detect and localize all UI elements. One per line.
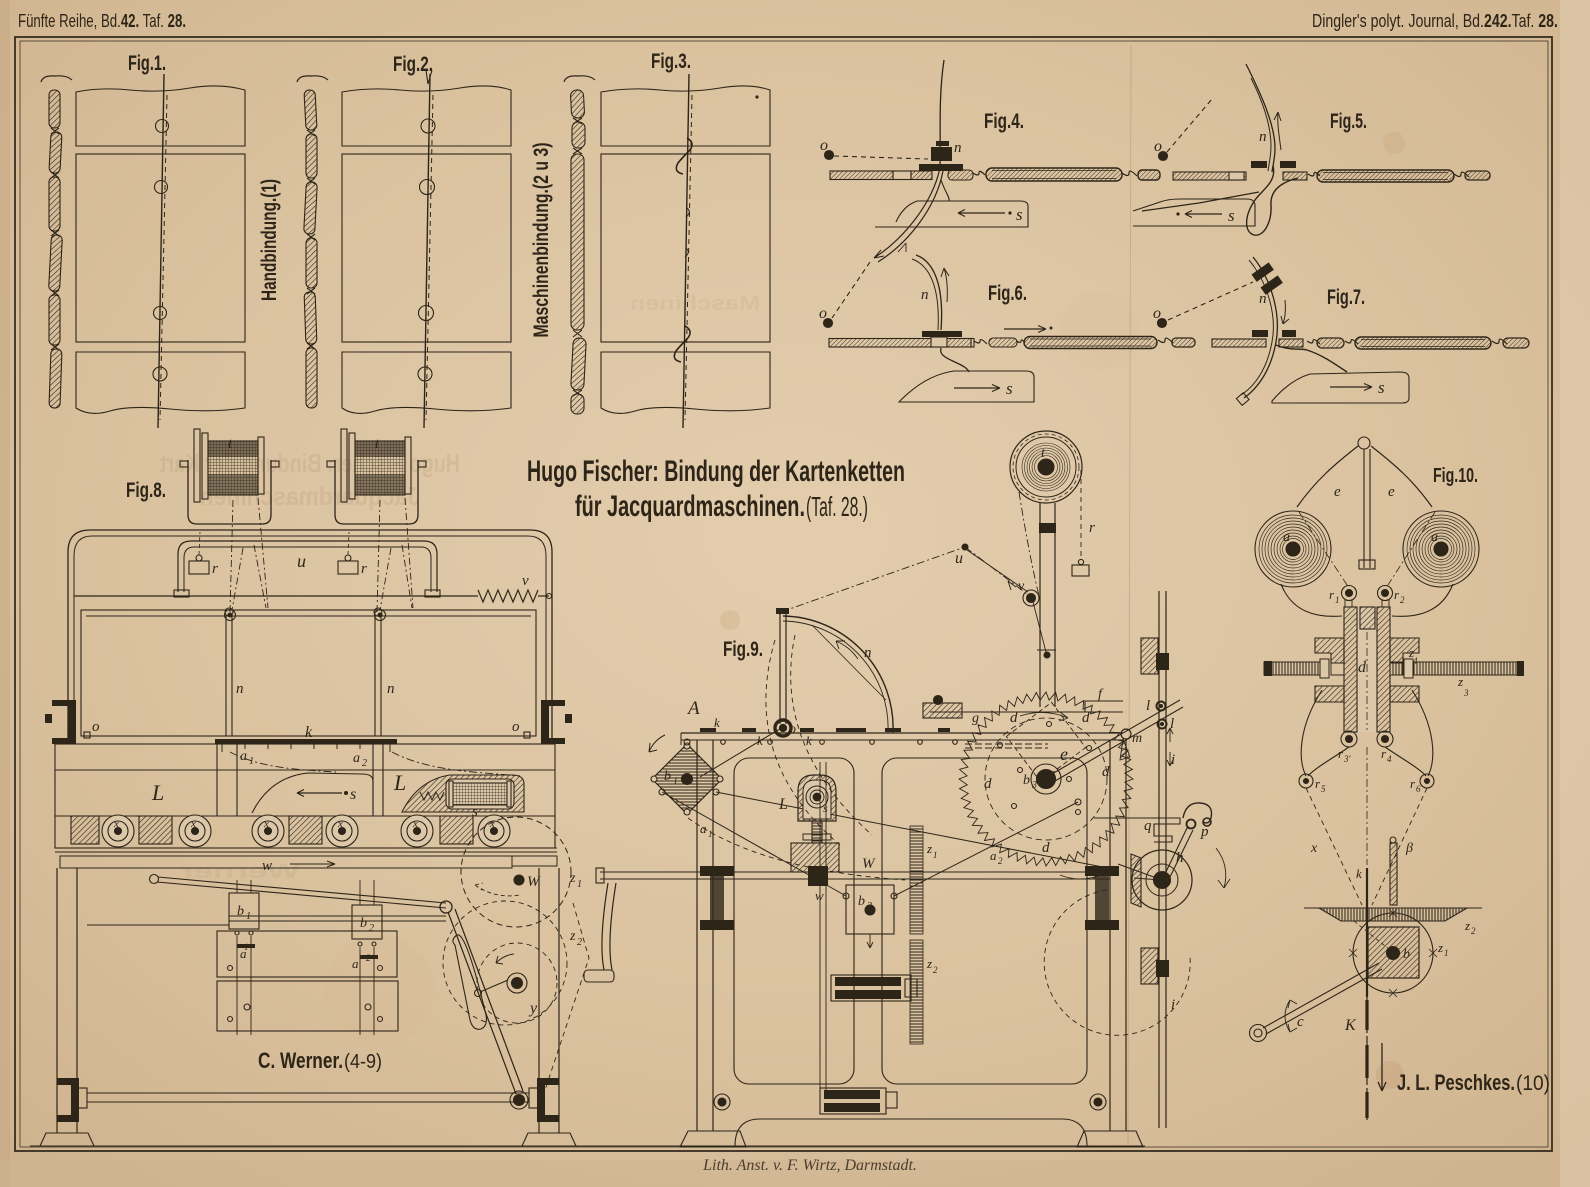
svg-text:L: L (393, 770, 406, 795)
svg-text:Maschinenbindung.(2 u 3): Maschinenbindung.(2 u 3) (530, 143, 553, 338)
svg-text:a: a (1431, 530, 1438, 545)
svg-text:w: w (262, 858, 272, 874)
svg-text:x: x (412, 818, 418, 830)
svg-text:k: k (714, 715, 720, 730)
svg-text:Dingler's polyt. Journal, Bd.2: Dingler's polyt. Journal, Bd.242.Taf. 28… (1312, 11, 1558, 31)
svg-text:c: c (1297, 1014, 1304, 1030)
svg-text:z: z (1457, 674, 1463, 689)
svg-text:2: 2 (1471, 926, 1476, 936)
svg-text:r: r (212, 561, 218, 577)
svg-text:s: s (1228, 206, 1235, 225)
svg-text:p: p (1200, 824, 1209, 840)
svg-text:z: z (569, 871, 576, 886)
svg-text:Fig.7.: Fig.7. (1327, 286, 1365, 309)
svg-text:1: 1 (246, 911, 251, 922)
svg-text:K: K (1344, 1017, 1357, 1034)
svg-text:a: a (240, 749, 247, 764)
svg-text:s: s (350, 786, 356, 803)
svg-text:k: k (305, 724, 313, 741)
svg-text:A: A (686, 698, 700, 719)
svg-text:z: z (1464, 918, 1470, 933)
svg-text:z: z (926, 956, 932, 971)
svg-text:Fig.6.: Fig.6. (988, 282, 1027, 305)
svg-text:2: 2 (366, 953, 371, 963)
svg-text:Fünfte Reihe, Bd.42. Taf. 28.: Fünfte Reihe, Bd.42. Taf. 28. (18, 11, 186, 31)
svg-text:o: o (819, 305, 827, 322)
svg-text:(4-9): (4-9) (344, 1051, 382, 1073)
svg-text:z: z (926, 841, 932, 856)
svg-text:l: l (1146, 698, 1150, 714)
svg-text:e: e (1060, 744, 1068, 764)
svg-text:a: a (990, 848, 997, 863)
svg-text:x: x (337, 818, 343, 830)
svg-text:d: d (1042, 840, 1050, 856)
svg-text:n: n (921, 287, 929, 303)
svg-text:e: e (1388, 484, 1395, 500)
svg-text:b: b (1403, 947, 1410, 962)
svg-text:Werner: Werner (180, 861, 300, 883)
svg-text:C. Werner.: C. Werner. (258, 1048, 343, 1073)
svg-text:m: m (1132, 731, 1142, 746)
svg-text:Fig.4.: Fig.4. (984, 110, 1024, 133)
svg-text:n: n (954, 140, 962, 156)
svg-text:q: q (1144, 818, 1152, 834)
svg-text:s: s (1016, 205, 1023, 224)
svg-text:b: b (858, 894, 865, 909)
svg-text:n: n (864, 645, 872, 661)
svg-text:1: 1 (577, 879, 582, 890)
svg-text:4: 4 (1413, 656, 1418, 666)
svg-text:n: n (387, 681, 395, 697)
svg-text:6: 6 (1416, 784, 1421, 794)
svg-text:k: k (1356, 866, 1362, 881)
svg-text:x: x (190, 818, 196, 830)
svg-text:b: b (664, 769, 671, 784)
svg-text:1: 1 (708, 829, 713, 839)
svg-text:d: d (1358, 659, 1367, 676)
svg-text:Hugo Fischer: Bindung der Kart: Hugo Fischer: Bindung der Kart (160, 448, 460, 478)
svg-text:d: d (984, 776, 992, 792)
svg-text:k: k (757, 733, 763, 748)
svg-text:Hugo Fischer: Bindung der Kart: Hugo Fischer: Bindung der Kartenketten (527, 455, 905, 488)
svg-text:Fig.8.: Fig.8. (126, 479, 166, 502)
svg-text:v: v (1018, 579, 1025, 594)
svg-text:s: s (1378, 378, 1385, 397)
svg-text:2: 2 (362, 758, 367, 769)
svg-text:4: 4 (1387, 754, 1392, 764)
svg-text:Fig.9.: Fig.9. (723, 638, 763, 661)
svg-text:1: 1 (1335, 595, 1340, 605)
svg-text:n: n (236, 681, 244, 697)
svg-text:d: d (1082, 710, 1090, 726)
svg-text:v: v (522, 573, 529, 589)
svg-text:2: 2 (998, 856, 1003, 866)
svg-text:W: W (862, 856, 876, 872)
svg-text:Fig.1.: Fig.1. (128, 52, 166, 75)
svg-text:z: z (1437, 940, 1443, 955)
svg-text:o: o (1153, 305, 1161, 322)
svg-text:o: o (512, 719, 520, 735)
svg-text:u: u (297, 551, 306, 571)
svg-text:y: y (528, 1000, 538, 1017)
svg-text:Fig.10.: Fig.10. (1433, 465, 1478, 487)
svg-text:a: a (352, 956, 359, 971)
svg-text:x: x (263, 818, 269, 830)
svg-text:2: 2 (369, 923, 374, 934)
svg-text:i: i (1171, 752, 1175, 768)
svg-text:3: 3 (1463, 688, 1469, 698)
svg-text:w: w (815, 888, 824, 903)
svg-text:1: 1 (673, 776, 678, 787)
svg-text:2: 2 (577, 937, 582, 948)
svg-text:e: e (1334, 484, 1341, 500)
svg-text:1: 1 (933, 850, 938, 860)
svg-text:L: L (151, 780, 164, 805)
svg-text:L: L (778, 796, 788, 813)
svg-text:s: s (823, 801, 828, 815)
svg-text:b: b (360, 916, 367, 931)
svg-text:5: 5 (1321, 784, 1326, 794)
svg-text:3': 3' (1343, 754, 1352, 764)
svg-text:k: k (806, 733, 812, 748)
svg-text:1: 1 (1444, 948, 1449, 958)
svg-text:3: 3 (1031, 780, 1037, 791)
svg-text:r: r (361, 561, 367, 577)
svg-text:o: o (789, 722, 796, 737)
svg-text:b: b (1023, 773, 1030, 788)
svg-text:(10): (10) (1516, 1072, 1550, 1095)
svg-text:h: h (1176, 850, 1184, 866)
svg-text:s: s (1006, 379, 1013, 398)
svg-text:d: d (1010, 710, 1018, 726)
svg-text:Fig.5.: Fig.5. (1330, 110, 1367, 133)
svg-text:Handbindung.(1): Handbindung.(1) (258, 179, 281, 301)
svg-text:Fig.2.: Fig.2. (393, 53, 433, 76)
svg-text:a: a (1283, 530, 1290, 545)
svg-text:a: a (353, 751, 360, 766)
svg-text:n: n (1259, 129, 1267, 145)
svg-text:b: b (237, 904, 244, 919)
svg-text:r: r (1089, 520, 1095, 536)
svg-text:z: z (569, 929, 576, 944)
svg-text:1: 1 (244, 942, 249, 952)
svg-text:für Jacquardmaschinen.: für Jacquardmaschinen. (575, 490, 805, 523)
svg-text:β: β (1405, 841, 1413, 856)
svg-text:n: n (1259, 291, 1267, 307)
svg-text:g: g (972, 711, 979, 726)
svg-text:o: o (1154, 138, 1162, 155)
svg-text:W: W (527, 874, 541, 890)
svg-text:2: 2 (1400, 595, 1405, 605)
svg-text:d: d (1102, 764, 1110, 780)
svg-text:Maschinen: Maschinen (630, 293, 760, 315)
svg-text:2: 2 (933, 965, 938, 975)
svg-text:o: o (820, 137, 828, 154)
svg-text:2: 2 (867, 901, 872, 912)
svg-text:Lith. Anst. v. F. Wirtz, Darms: Lith. Anst. v. F. Wirtz, Darmstadt. (702, 1157, 917, 1174)
svg-text:o: o (92, 719, 100, 735)
svg-text:J. L. Peschkes.: J. L. Peschkes. (1397, 1070, 1515, 1095)
svg-text:1: 1 (249, 756, 254, 767)
svg-text:x: x (1310, 841, 1318, 856)
svg-text:u: u (955, 550, 963, 567)
svg-text:(Taf. 28.): (Taf. 28.) (806, 491, 868, 522)
svg-text:x: x (113, 818, 119, 830)
svg-text:Fig.3.: Fig.3. (651, 50, 691, 73)
